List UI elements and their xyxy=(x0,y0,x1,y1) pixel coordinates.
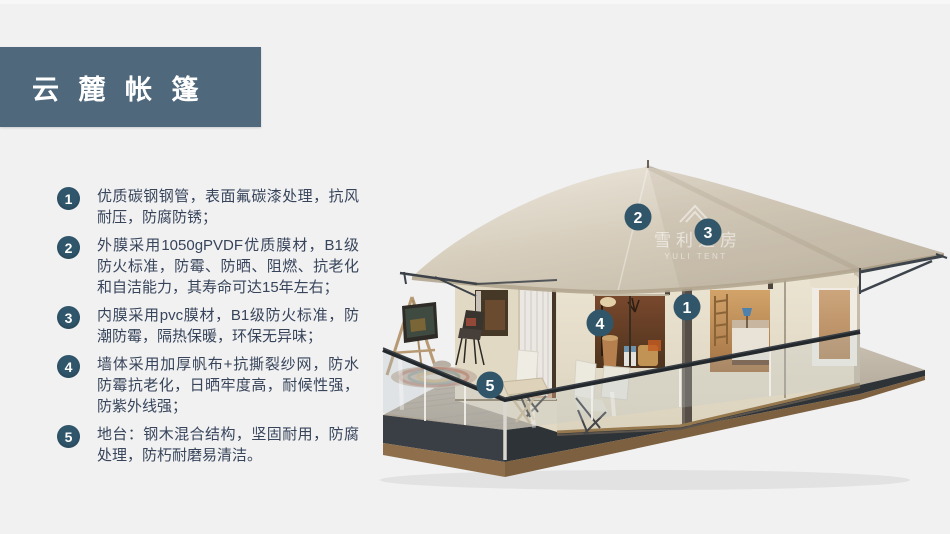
tent-illustration: 雪利篷房 YULI TENT xyxy=(380,160,950,490)
feature-bullet-5: 5 xyxy=(57,425,80,448)
feature-bullet-3: 3 xyxy=(57,306,80,329)
feature-bullet-4: 4 xyxy=(57,355,80,378)
feature-text-5: 地台：钢木混合结构，坚固耐用，防腐处理，防朽耐磨易清洁。 xyxy=(97,424,359,466)
ground-shadow xyxy=(380,470,910,490)
feature-item-1: 1 优质碳钢钢管，表面氟碳漆处理，抗风耐压，防腐防锈； xyxy=(57,186,377,228)
feature-bullet-2: 2 xyxy=(57,236,80,259)
page-title: 云 麓 帐 篷 xyxy=(32,68,205,107)
feature-item-2: 2 外膜采用1050gPVDF优质膜材，B1级防火标准，防霉、防晒、阻燃、抗老化… xyxy=(57,235,377,298)
marker-1: 1 xyxy=(674,294,701,321)
feature-item-5: 5 地台：钢木混合结构，坚固耐用，防腐处理，防朽耐磨易清洁。 xyxy=(57,424,377,466)
marker-2: 2 xyxy=(625,204,652,231)
feature-item-4: 4 墙体采用加厚帆布+抗撕裂纱网，防水防霉抗老化，日晒牢度高，耐候性强，防紫外线… xyxy=(57,354,377,417)
marker-4-label: 4 xyxy=(596,316,605,333)
marker-3-label: 3 xyxy=(704,225,713,242)
tent-svg: 雪利篷房 YULI TENT xyxy=(380,160,950,490)
page-top-edge xyxy=(0,0,950,4)
feature-text-2: 外膜采用1050gPVDF优质膜材，B1级防火标准，防霉、防晒、阻燃、抗老化和自… xyxy=(97,235,359,298)
marker-5: 5 xyxy=(477,372,504,399)
feature-item-3: 3 内膜采用pvc膜材，B1级防火标准，防潮防霉，隔热保暖，环保无异味； xyxy=(57,305,377,347)
marker-3: 3 xyxy=(695,219,722,246)
watermark-en: YULI TENT xyxy=(664,252,727,261)
marker-4: 4 xyxy=(587,310,614,337)
marker-1-label: 1 xyxy=(683,300,692,317)
marker-2-label: 2 xyxy=(634,210,643,227)
title-bar: 云 麓 帐 篷 xyxy=(0,47,261,127)
feature-text-1: 优质碳钢钢管，表面氟碳漆处理，抗风耐压，防腐防锈； xyxy=(97,186,359,228)
feature-bullet-1: 1 xyxy=(57,187,80,210)
feature-list: 1 优质碳钢钢管，表面氟碳漆处理，抗风耐压，防腐防锈； 2 外膜采用1050gP… xyxy=(57,186,377,466)
feature-text-4: 墙体采用加厚帆布+抗撕裂纱网，防水防霉抗老化，日晒牢度高，耐候性强，防紫外线强； xyxy=(97,354,359,417)
marker-5-label: 5 xyxy=(486,378,495,395)
feature-text-3: 内膜采用pvc膜材，B1级防火标准，防潮防霉，隔热保暖，环保无异味； xyxy=(97,305,359,347)
